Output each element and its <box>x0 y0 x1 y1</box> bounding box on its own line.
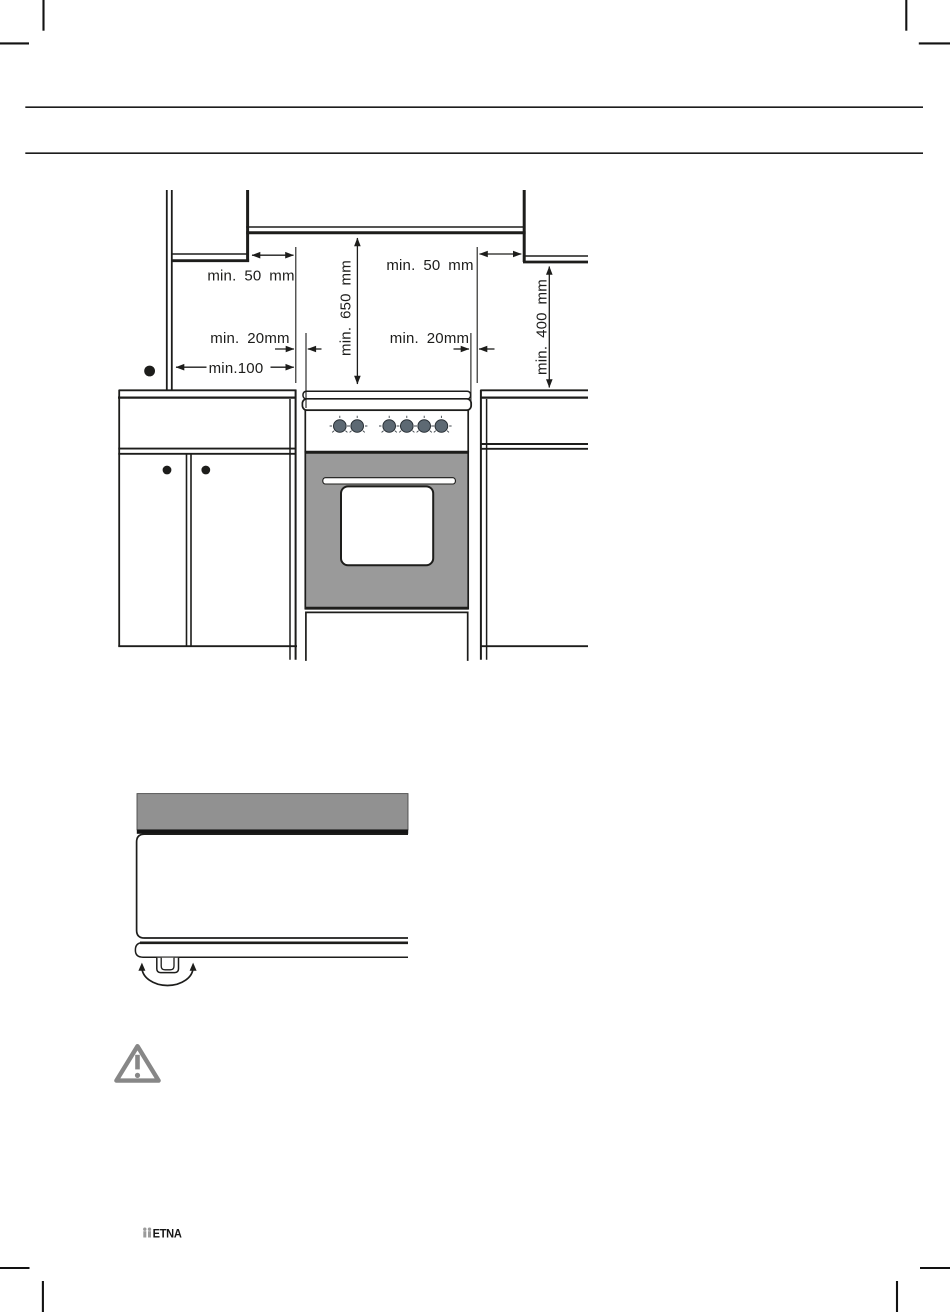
logo-mark-dot <box>148 1228 151 1231</box>
storage-drawer <box>306 612 468 661</box>
dimension-label: min. 20mm <box>210 330 289 347</box>
door-bottom-bar <box>137 830 408 834</box>
cooker <box>302 391 471 661</box>
rotation-arrowhead-right <box>190 963 197 971</box>
hob-strip-upper <box>303 391 471 399</box>
door-handle <box>323 478 456 484</box>
door-knob-dot <box>201 466 210 475</box>
warning-exclamation-dot <box>135 1073 140 1078</box>
appliance-bottom-band <box>137 794 408 830</box>
knob-circle <box>334 420 347 433</box>
hob-strip-lower <box>302 399 471 410</box>
base-cabinet-left <box>118 390 297 660</box>
dim-min400: min. 400 mm <box>534 267 551 388</box>
knob-circle <box>435 420 448 433</box>
dim-min20-right: min. 20mm <box>390 330 495 349</box>
base-cabinet-right <box>481 390 589 660</box>
dimension-label: min. 50 mm <box>386 257 473 274</box>
brand-logo: ETNA <box>143 1228 182 1241</box>
leveling-foot-diagram <box>135 794 408 986</box>
dim-min20-left: min. 20mm <box>210 330 321 349</box>
drawer-front-outline <box>137 834 408 938</box>
manual-page: min. 50 mm min. 50 mm min. 650 mm min. 4… <box>0 0 950 1312</box>
logo-mark-bar <box>148 1231 151 1237</box>
wall-socket-dot <box>144 366 155 377</box>
dim-min50-right: min. 50 mm <box>386 254 521 274</box>
knob-circle <box>401 420 414 433</box>
logo-mark <box>143 1228 151 1238</box>
crop-marks <box>0 0 950 1312</box>
dimension-label: min. 650 mm <box>338 260 355 356</box>
dim-min650: min. 650 mm <box>338 238 358 384</box>
dim-min100: min.100 <box>176 360 294 377</box>
door-knob-dot <box>163 466 172 475</box>
plinth-outline <box>135 943 408 958</box>
logo-mark-dot <box>143 1228 146 1231</box>
clearance-diagram: min. 50 mm min. 50 mm min. 650 mm min. 4… <box>118 190 588 661</box>
knob-circle <box>383 420 396 433</box>
logo-text: ETNA <box>153 1229 182 1241</box>
dimension-label: min.100 <box>209 360 264 377</box>
dimension-label: min. 400 mm <box>534 279 551 375</box>
dimension-label: min. 20mm <box>390 330 469 347</box>
knob-circle <box>418 420 431 433</box>
logo-mark-bar <box>143 1231 146 1237</box>
knob-circle <box>351 420 364 433</box>
dimension-label: min. 50 mm <box>207 268 294 285</box>
page-drawing: min. 50 mm min. 50 mm min. 650 mm min. 4… <box>0 0 950 1312</box>
adjustable-foot-inner <box>161 958 174 970</box>
oven-window <box>341 486 433 565</box>
warning-triangle-icon <box>116 1046 158 1080</box>
rotation-arrowhead-left <box>138 963 145 971</box>
